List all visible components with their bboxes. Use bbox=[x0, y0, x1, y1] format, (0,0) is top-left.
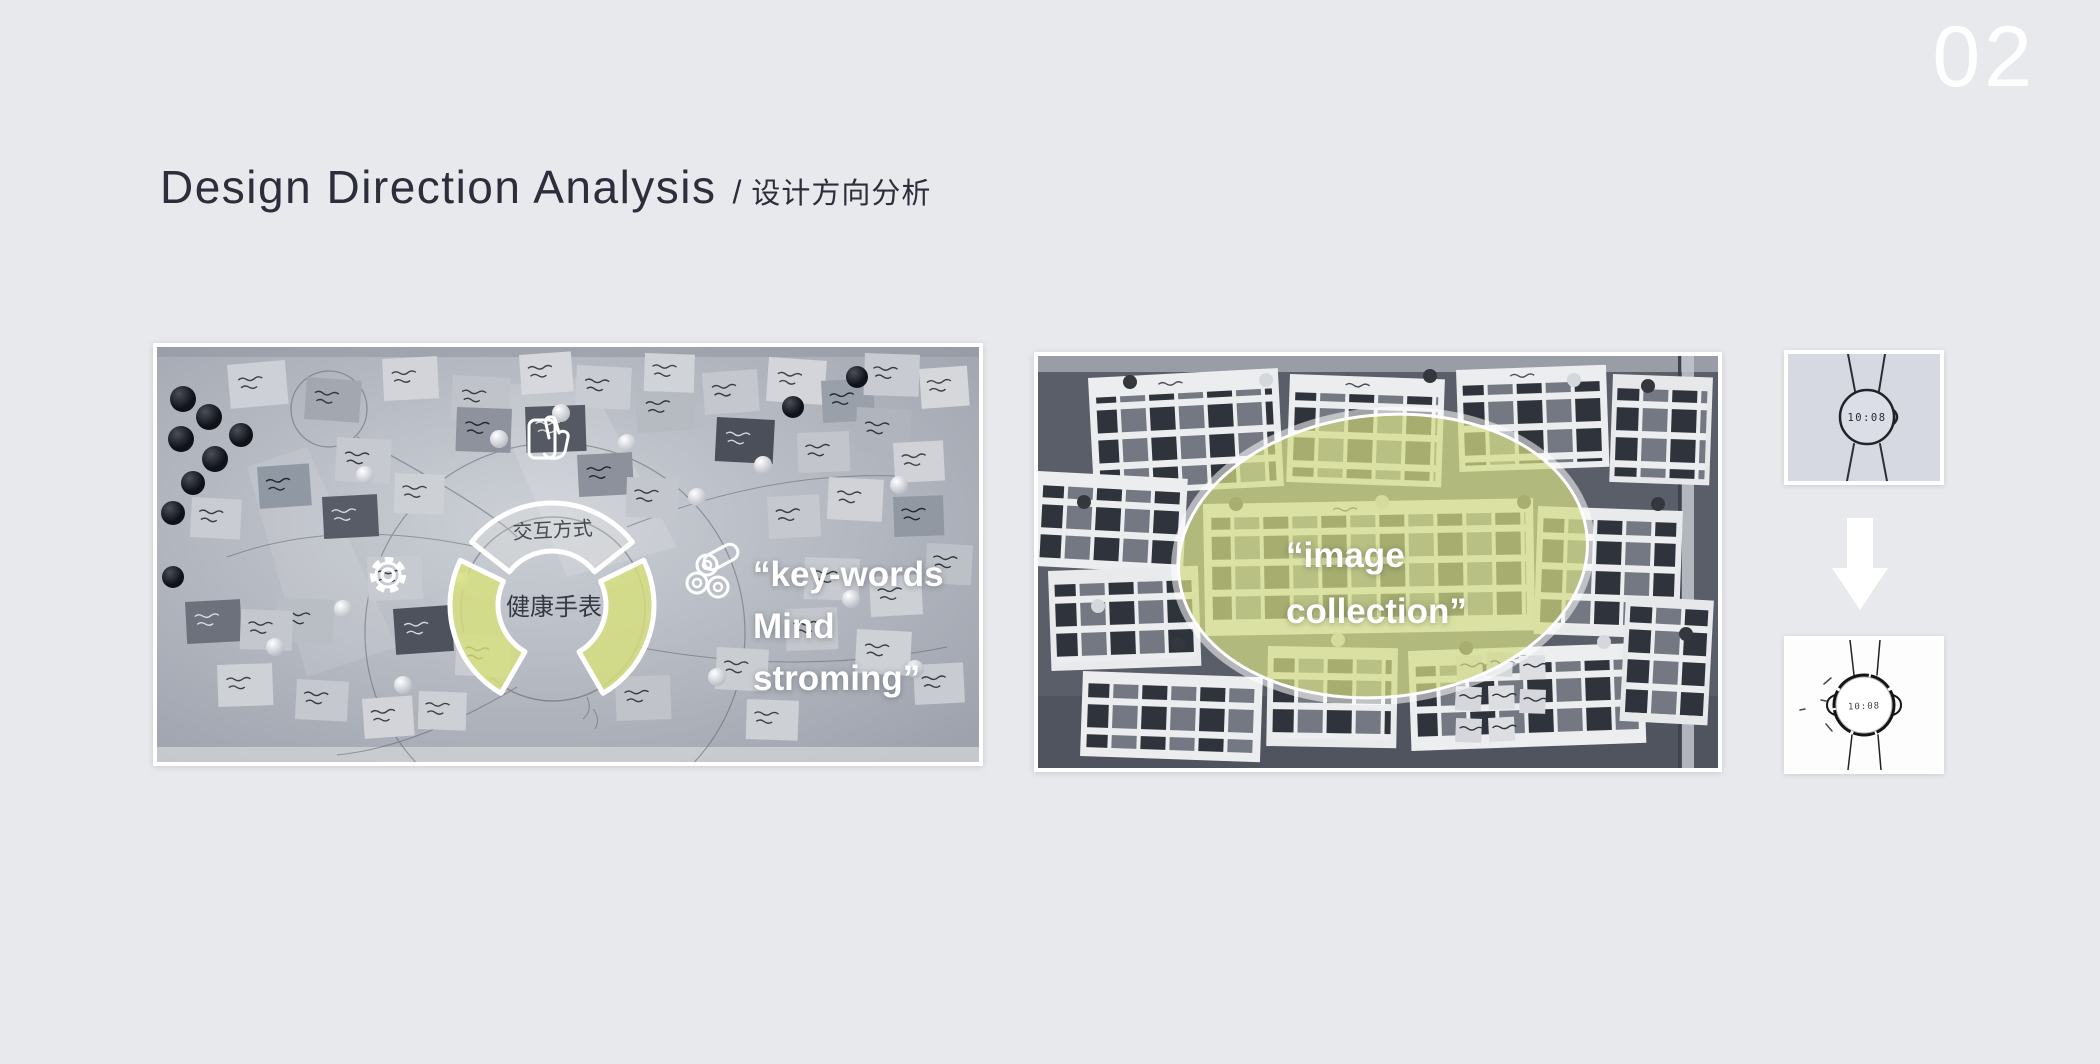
page-number: 02 bbox=[1932, 14, 2036, 100]
page-title: Design Direction Analysis bbox=[160, 160, 717, 214]
keywords-caption: “key-words Mind stroming” bbox=[753, 549, 983, 705]
watch-time-sketch: 10:08 bbox=[1848, 701, 1880, 712]
center-label: 健康手表 bbox=[506, 594, 602, 621]
watch-sketch-bottom: 10:08 bbox=[1784, 636, 1944, 774]
caption-line: collection” bbox=[1286, 584, 1516, 640]
presentation-slide: 02 Design Direction Analysis / 设计方向分析 bbox=[0, 0, 2100, 1064]
watch-sketch-top: 10:08 bbox=[1784, 350, 1944, 485]
caption-line: stroming” bbox=[753, 653, 983, 705]
slide-header: Design Direction Analysis / 设计方向分析 bbox=[160, 160, 931, 214]
top-arc-label: 交互方式 bbox=[512, 517, 593, 544]
caption-line: “key-words bbox=[753, 549, 983, 601]
watch-sketch-top-graphic: 10:08 bbox=[1788, 354, 1940, 481]
watch-sketch-bottom-graphic: 10:08 bbox=[1788, 640, 1940, 770]
down-arrow-icon bbox=[1828, 516, 1892, 616]
image-collection-caption: “image collection” bbox=[1286, 528, 1516, 640]
caption-line: Mind bbox=[753, 601, 983, 653]
watch-time-display: 10:08 bbox=[1847, 412, 1886, 424]
mindmap-photo: 交互方式 健康手表 “key-words Mind str bbox=[153, 343, 983, 766]
page-title-chinese: 设计方向分析 bbox=[751, 170, 931, 212]
caption-line: “image bbox=[1286, 528, 1516, 584]
moodboard-photo: “image collection” bbox=[1034, 352, 1722, 772]
title-separator: / bbox=[733, 174, 742, 211]
